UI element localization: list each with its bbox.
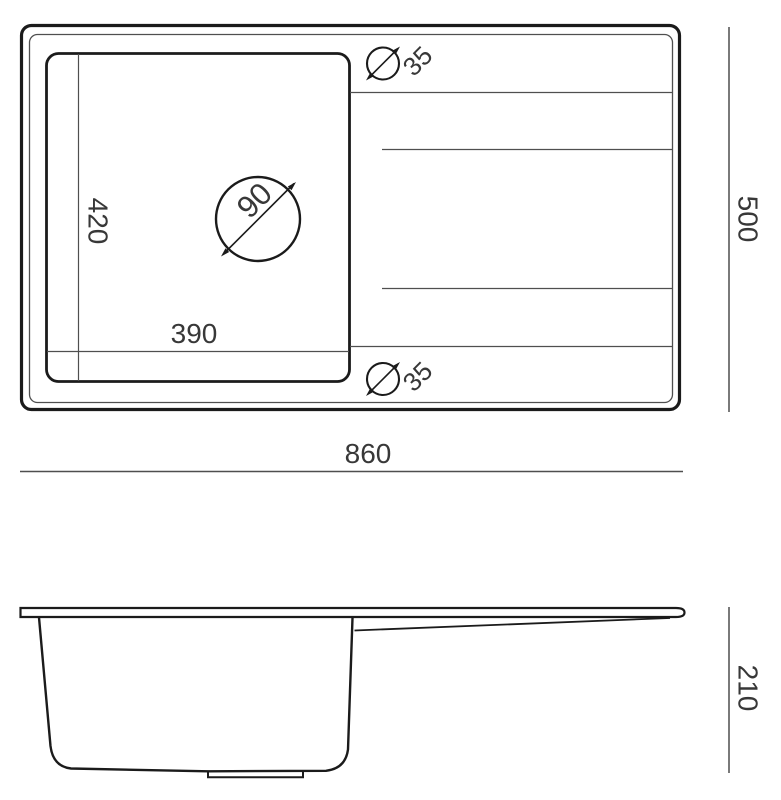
drainboard-underside-line	[355, 618, 671, 631]
technical-drawing-canvas: 35 35 90 420 390	[0, 0, 781, 800]
bowl-profile	[39, 618, 353, 772]
tap-hole-bottom-label: 35	[397, 356, 439, 398]
dim-overall-depth-label: 500	[733, 196, 764, 243]
sink-technical-drawing: 35 35 90 420 390	[0, 0, 781, 800]
tap-hole-top-diameter-symbol: 35	[366, 40, 438, 82]
faucet-hole-diameter-symbol: 90	[216, 176, 300, 261]
tap-hole-top-label: 35	[397, 40, 439, 82]
dim-overall-width-label: 860	[345, 438, 392, 469]
dim-side-height-label: 210	[733, 665, 764, 712]
tap-hole-bottom-diameter-symbol: 35	[366, 356, 438, 398]
dim-bowl-depth-label: 420	[83, 198, 114, 245]
sink-inner-rim	[30, 35, 673, 403]
side-view: 210	[21, 607, 764, 777]
top-view: 35 35 90 420 390	[20, 26, 764, 472]
countertop-rim-profile	[21, 608, 685, 617]
dim-bowl-width-label: 390	[171, 318, 218, 349]
tap-hole-top-diameter-line	[368, 49, 398, 79]
tap-hole-bottom-diameter-line	[368, 364, 398, 394]
